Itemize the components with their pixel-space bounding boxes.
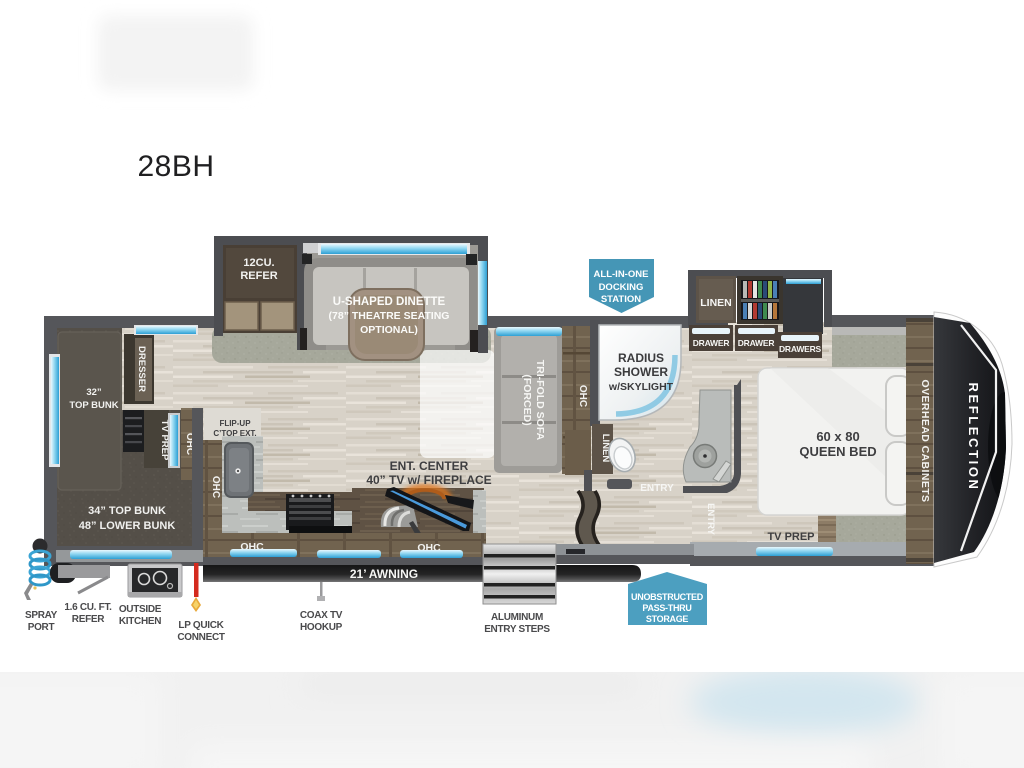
svg-text:OVERHEAD CABINETS: OVERHEAD CABINETS (919, 380, 931, 503)
svg-text:DRESSER: DRESSER (136, 346, 147, 392)
svg-text:UNOBSTRUCTED: UNOBSTRUCTED (631, 592, 704, 602)
svg-text:DRAWER: DRAWER (693, 338, 730, 348)
svg-text:TV PREP: TV PREP (767, 531, 814, 543)
svg-text:LP QUICK: LP QUICK (178, 620, 224, 631)
svg-text:28BH: 28BH (137, 150, 214, 183)
svg-text:PORT: PORT (28, 622, 55, 633)
svg-text:CONNECT: CONNECT (177, 632, 225, 643)
svg-text:ENTRY: ENTRY (705, 503, 716, 536)
svg-text:COAX TV: COAX TV (300, 610, 343, 621)
svg-text:48” LOWER BUNK: 48” LOWER BUNK (79, 520, 176, 532)
svg-text:KITCHEN: KITCHEN (119, 616, 161, 627)
svg-text:21’ AWNING: 21’ AWNING (350, 567, 418, 581)
svg-text:DOCKING: DOCKING (599, 282, 644, 293)
svg-text:ENTRY: ENTRY (640, 483, 674, 494)
svg-text:32”: 32” (86, 387, 102, 398)
svg-text:REFER: REFER (72, 614, 105, 625)
svg-text:SHOWER: SHOWER (614, 365, 668, 379)
svg-text:ENT. CENTER: ENT. CENTER (390, 459, 469, 473)
svg-text:OPTIONAL): OPTIONAL) (360, 324, 418, 336)
svg-text:OHC: OHC (210, 476, 221, 498)
svg-text:REFLECTION: REFLECTION (966, 382, 981, 491)
svg-text:QUEEN BED: QUEEN BED (799, 444, 876, 459)
svg-text:HOOKUP: HOOKUP (300, 622, 343, 633)
svg-text:TOP BUNK: TOP BUNK (69, 400, 118, 411)
svg-text:RADIUS: RADIUS (618, 351, 664, 365)
svg-text:TRI-FOLD SOFA: TRI-FOLD SOFA (534, 360, 546, 441)
svg-text:STORAGE: STORAGE (646, 614, 689, 624)
svg-text:w/SKYLIGHT: w/SKYLIGHT (608, 381, 674, 393)
svg-text:ALL-IN-ONE: ALL-IN-ONE (594, 269, 649, 280)
svg-text:34” TOP BUNK: 34” TOP BUNK (88, 505, 166, 517)
svg-text:(FORCED): (FORCED) (521, 374, 533, 425)
svg-text:OUTSIDE: OUTSIDE (119, 604, 162, 615)
svg-text:(78” THEATRE SEATING: (78” THEATRE SEATING (329, 310, 450, 322)
svg-text:U-SHAPED DINETTE: U-SHAPED DINETTE (333, 296, 446, 308)
svg-text:REFER: REFER (240, 270, 277, 282)
svg-text:FLIP-UP: FLIP-UP (219, 419, 251, 428)
svg-text:60 x 80: 60 x 80 (816, 429, 859, 444)
svg-text:ALUMINUM: ALUMINUM (491, 612, 543, 623)
svg-text:STATION: STATION (601, 294, 641, 305)
svg-text:SPRAY: SPRAY (25, 610, 58, 621)
svg-text:1.6 CU. FT.: 1.6 CU. FT. (64, 602, 112, 613)
svg-text:OHC: OHC (577, 385, 588, 407)
svg-text:DRAWERS: DRAWERS (779, 344, 822, 354)
svg-text:40” TV w/ FIREPLACE: 40” TV w/ FIREPLACE (366, 473, 491, 487)
svg-text:12CU.: 12CU. (243, 257, 274, 269)
svg-text:DRAWER: DRAWER (738, 338, 775, 348)
svg-text:LINEN: LINEN (700, 297, 732, 309)
svg-text:PASS-THRU: PASS-THRU (642, 603, 691, 613)
svg-text:ENTRY STEPS: ENTRY STEPS (484, 624, 550, 635)
